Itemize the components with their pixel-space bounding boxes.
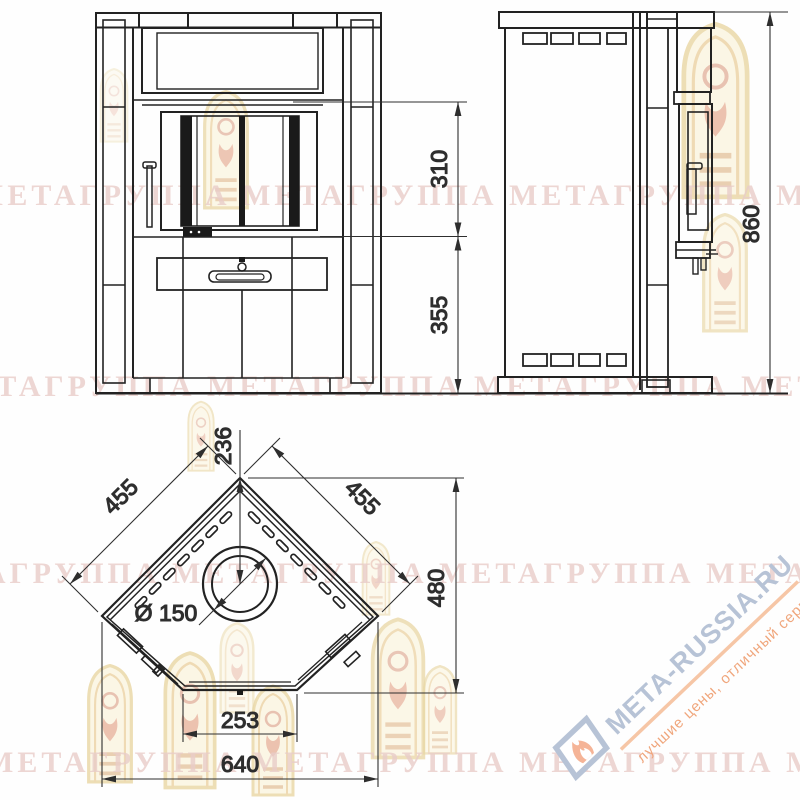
dim-plan-front-edge-label: 253 [221,707,259,733]
dim-plan-side-right-label: 455 [340,475,386,521]
arch-watermark-icon [221,623,254,712]
dim-plan-flue-diameter-label: Ø 150 [135,600,198,626]
arch-watermark-icon [684,24,747,197]
arch-watermark-icon [373,619,424,757]
watermark-text-row: МЕТАГРУППА МЕТАГРУППА МЕТАГРУППА МЕТАГРУ… [0,746,800,779]
side-top-plate [499,12,714,28]
side-vent-slot [551,354,573,366]
stove-technical-drawing-page: МЕТАГРУППА МЕТАГРУППА МЕТАГРУППА МЕТАГРУ… [0,0,800,800]
side-vent-slot [579,33,600,44]
dim-front-lower-label: 355 [426,296,452,334]
dim-front-upper-label: 310 [426,150,452,188]
side-vent-slot [551,33,573,44]
stove-technical-drawing: МЕТАГРУППА МЕТАГРУППА МЕТАГРУППА МЕТАГРУ… [0,0,800,800]
watermark-text-row: МЕТАГРУППА МЕТАГРУППА МЕТАГРУППА МЕТАГРУ… [0,370,800,403]
dim-plan-total-width-label: 640 [221,751,259,777]
front-upper-panel [142,28,323,93]
dim-plan-depth-label: 480 [423,569,449,607]
arch-watermark-icon [424,666,456,753]
side-vent-slot [523,354,547,366]
side-vent-slot [607,354,626,366]
side-vent-slot [523,33,547,44]
dim-plan-side-left-label: 455 [98,474,144,520]
dim-side-height-label: 860 [738,205,764,243]
arch-watermark-icon [101,69,128,142]
front-air-control [183,227,212,237]
dim-plan-back-to-flue-label: 236 [210,427,236,465]
side-vent-slot [607,33,626,44]
side-vent-slot [579,354,600,366]
